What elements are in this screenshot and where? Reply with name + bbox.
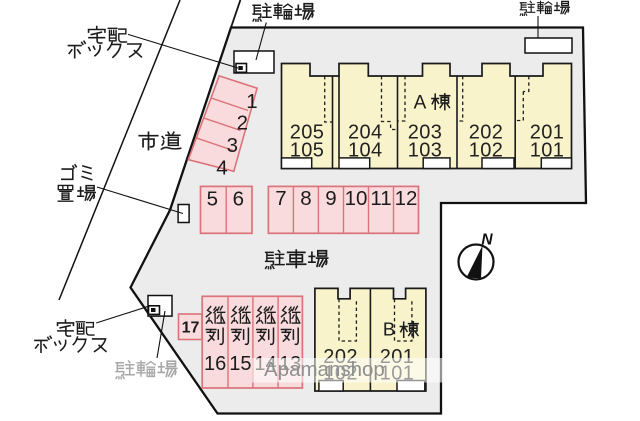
svg-text:2: 2	[237, 112, 248, 135]
svg-text:4: 4	[216, 156, 227, 179]
svg-text:Apamanshop: Apamanshop	[264, 358, 385, 381]
svg-text:9: 9	[325, 187, 336, 210]
svg-text:11: 11	[370, 187, 391, 210]
svg-text:12: 12	[395, 187, 418, 210]
svg-text:A: A	[414, 93, 427, 114]
svg-text:105: 105	[290, 140, 325, 162]
svg-text:7: 7	[275, 187, 286, 210]
svg-text:102: 102	[469, 140, 504, 162]
svg-text:103: 103	[408, 140, 443, 162]
svg-text:5: 5	[207, 188, 218, 211]
svg-text:N: N	[481, 232, 493, 249]
svg-text:101: 101	[530, 140, 565, 162]
svg-text:104: 104	[348, 140, 383, 162]
svg-text:6: 6	[233, 188, 244, 211]
svg-text:17: 17	[182, 320, 200, 337]
svg-text:15: 15	[229, 353, 251, 375]
svg-text:3: 3	[227, 134, 238, 157]
svg-text:B: B	[383, 319, 395, 340]
svg-text:8: 8	[300, 187, 311, 210]
svg-text:10: 10	[345, 187, 368, 210]
svg-text:1: 1	[246, 90, 257, 113]
svg-text:16: 16	[204, 353, 226, 375]
